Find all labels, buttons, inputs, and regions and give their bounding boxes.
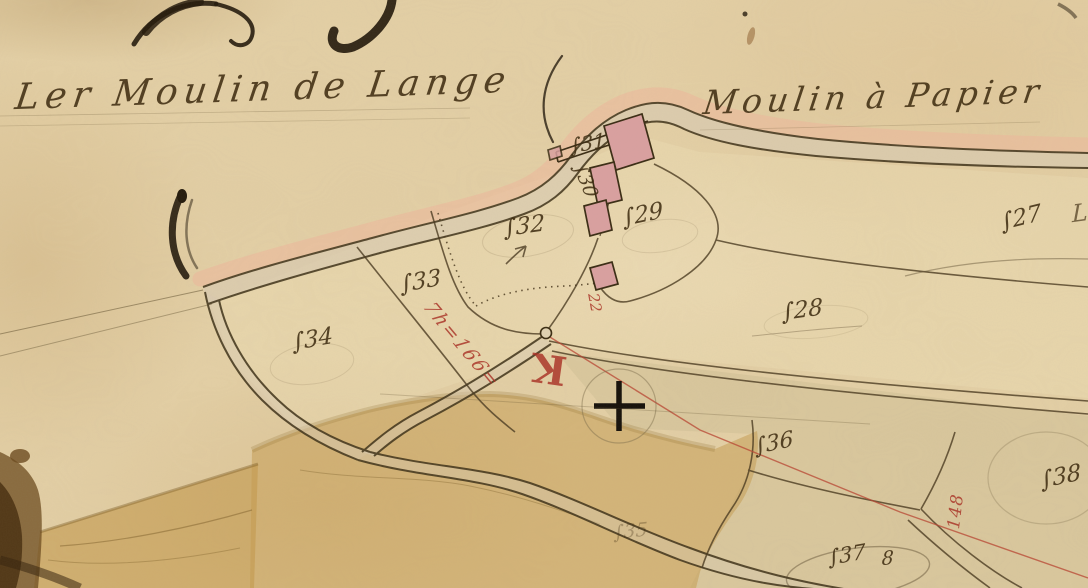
parcel-label-529: ∫29 [622, 199, 664, 231]
parcel-label-530: ∫30 [569, 163, 600, 199]
parcel-label-531: ∫31 [570, 130, 606, 156]
parcel-label-532: ∫32 [504, 212, 545, 241]
parcel-label-538: ∫38 [1040, 461, 1082, 493]
edge-partial-glyph: L [1072, 200, 1088, 226]
parcel-label-536: ∫36 [754, 429, 794, 459]
place-name-moulin-de-lange: Ler Moulin de Lange [13, 63, 514, 117]
red-letter-k: K [529, 346, 569, 390]
parcel-label-528: ∫28 [782, 296, 823, 325]
red-number-148: 148 [946, 493, 967, 530]
red-survey-note: 7h=166= [418, 300, 504, 390]
parcel-label-534: ∫34 [292, 325, 333, 355]
place-name-moulin-a-papier: Moulin à Papier [701, 74, 1046, 119]
parcel-label-527: ∫27 [1000, 202, 1042, 235]
map-labels: Ler Moulin de Lange Moulin à Papier ∫31 … [0, 0, 1088, 588]
parcel-label-537: ∫37 [828, 541, 866, 569]
parcel-label-533: ∫33 [400, 267, 441, 297]
cadastral-map: Ler Moulin de Lange Moulin à Papier ∫31 … [0, 0, 1088, 588]
red-number-22: 22 [585, 292, 603, 313]
parcel-label-8: 8 [881, 549, 894, 569]
parcel-label-535: ∫35 [613, 520, 648, 543]
